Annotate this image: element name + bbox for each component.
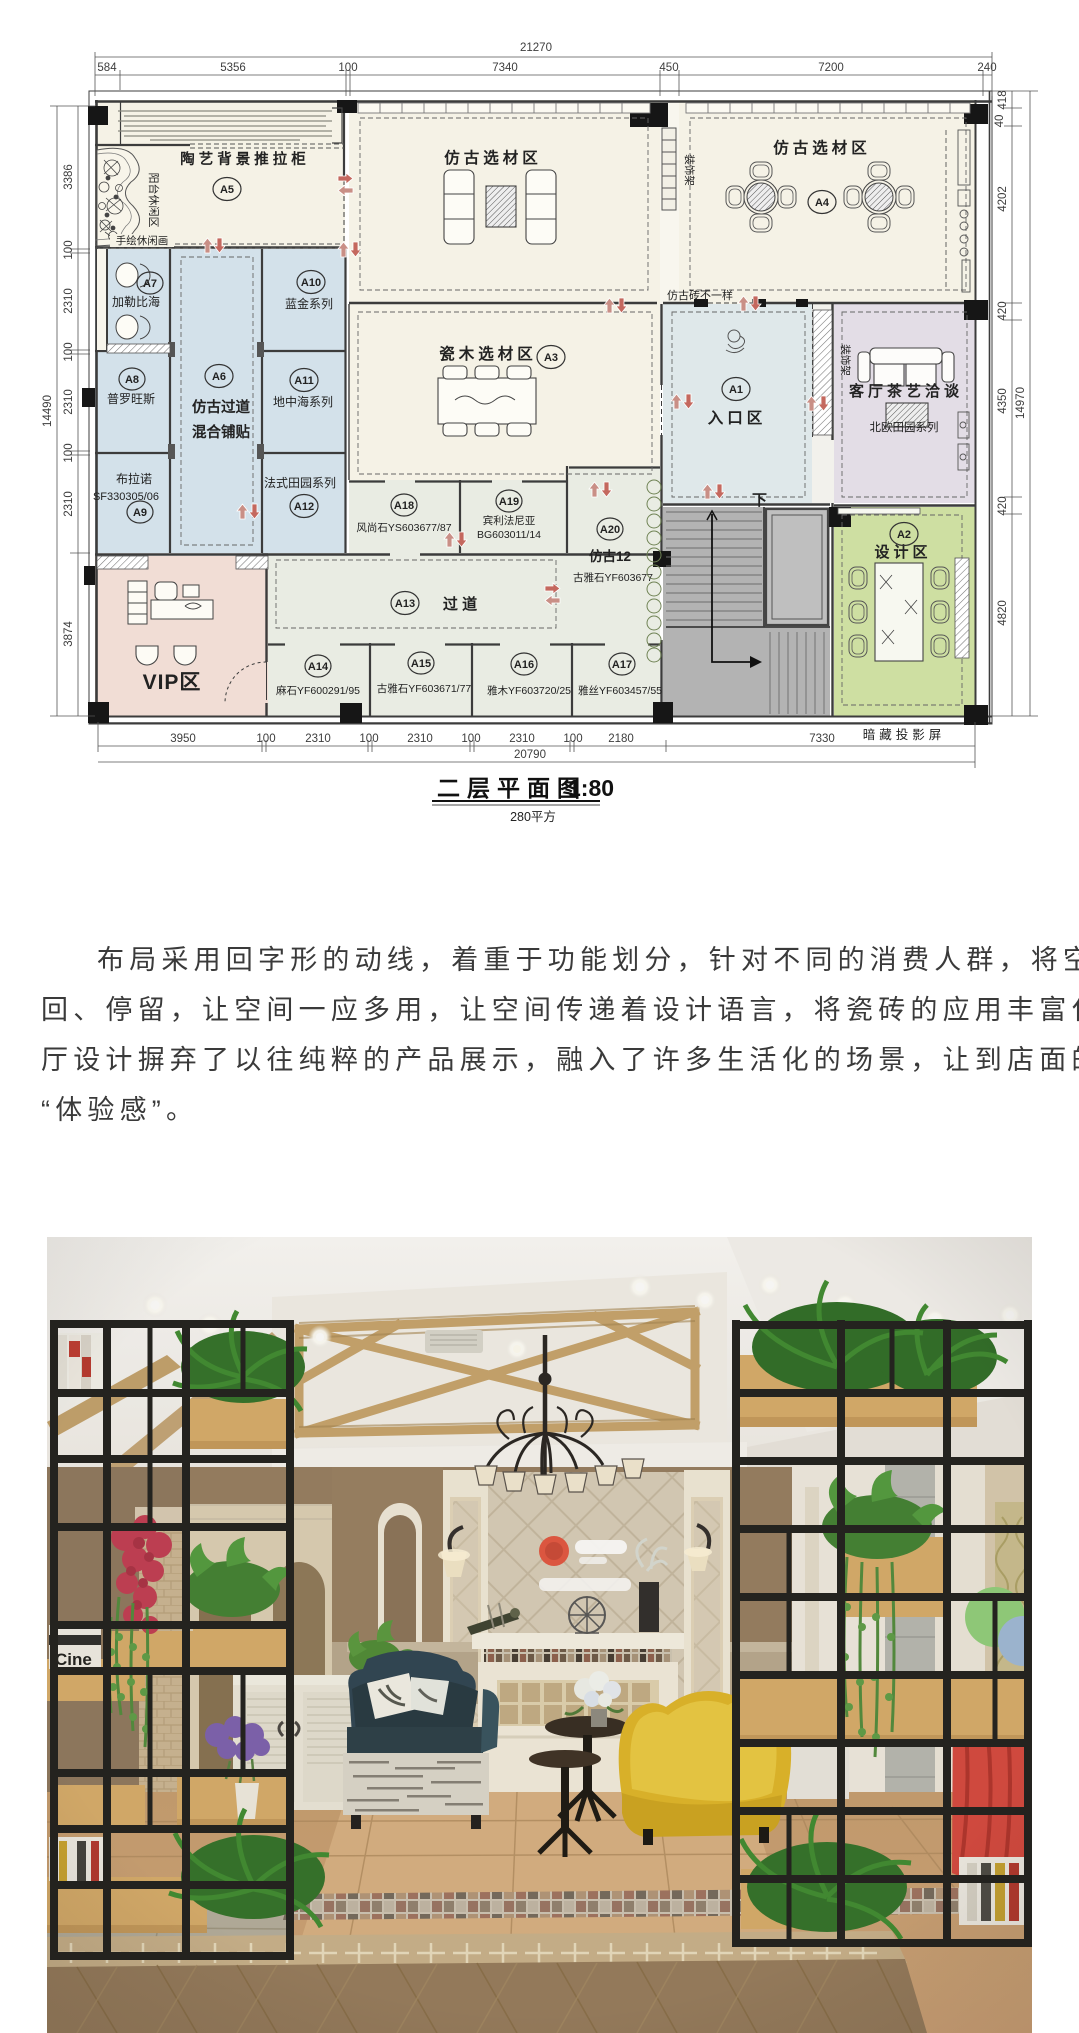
- svg-text:2310: 2310: [63, 491, 75, 517]
- svg-text:加勒比海: 加勒比海: [112, 294, 160, 309]
- svg-text:584: 584: [97, 62, 117, 74]
- svg-text:装饰架: 装饰架: [839, 344, 852, 376]
- svg-text:A8: A8: [125, 374, 139, 386]
- svg-text:仿古选材区: 仿古选材区: [444, 148, 542, 167]
- svg-text:A3: A3: [544, 352, 558, 364]
- svg-text:古雅石YF603677: 古雅石YF603677: [573, 571, 653, 584]
- svg-text:过 道: 过 道: [443, 595, 477, 613]
- svg-text:21270: 21270: [520, 42, 552, 54]
- svg-text:100: 100: [461, 733, 480, 745]
- svg-text:布拉诺: 布拉诺: [116, 471, 152, 486]
- svg-text:A12: A12: [294, 501, 314, 513]
- svg-text:40: 40: [994, 115, 1006, 128]
- svg-text:瓷木选材区: 瓷木选材区: [439, 344, 537, 363]
- svg-text:A17: A17: [612, 659, 632, 671]
- svg-text:4202: 4202: [997, 186, 1009, 212]
- svg-text:VIP区: VIP区: [143, 671, 202, 694]
- svg-text:BG603011/14: BG603011/14: [477, 529, 541, 541]
- svg-text:A2: A2: [897, 529, 911, 541]
- svg-text:雅丝YF603457/55: 雅丝YF603457/55: [578, 684, 662, 697]
- svg-text:法式田园系列: 法式田园系列: [264, 476, 336, 490]
- svg-text:SF330305/06: SF330305/06: [93, 491, 159, 503]
- svg-text:1:80: 1:80: [568, 775, 614, 801]
- svg-text:240: 240: [977, 62, 996, 74]
- svg-text:地中海系列: 地中海系列: [273, 394, 333, 409]
- svg-text:100: 100: [63, 342, 75, 361]
- svg-text:二层平面图: 二层平面图: [437, 775, 587, 801]
- svg-text:A16: A16: [514, 659, 534, 671]
- svg-text:蓝金系列: 蓝金系列: [285, 296, 333, 311]
- svg-text:仿古选材区: 仿古选材区: [773, 138, 871, 157]
- svg-text:280平方: 280平方: [510, 809, 556, 824]
- svg-text:手绘休闲画: 手绘休闲画: [116, 234, 169, 247]
- svg-text:陶艺背景推拉柜: 陶艺背景推拉柜: [180, 150, 310, 168]
- svg-text:入口区: 入口区: [708, 409, 767, 427]
- svg-text:7200: 7200: [818, 62, 844, 74]
- svg-text:3950: 3950: [170, 733, 196, 745]
- svg-text:100: 100: [563, 733, 582, 745]
- svg-text:100: 100: [256, 733, 275, 745]
- svg-text:100: 100: [338, 62, 357, 74]
- svg-text:雅木YF603720/25: 雅木YF603720/25: [487, 684, 571, 697]
- svg-text:暗藏投影屏: 暗藏投影屏: [863, 727, 946, 742]
- svg-text:A11: A11: [294, 375, 314, 387]
- svg-text:北欧田园系列: 北欧田园系列: [870, 420, 939, 434]
- svg-text:仿古过道: 仿古过道: [192, 398, 250, 416]
- svg-text:14970: 14970: [1015, 387, 1027, 419]
- svg-text:A5: A5: [220, 184, 234, 196]
- svg-text:A18: A18: [394, 500, 414, 512]
- svg-text:4350: 4350: [997, 388, 1009, 414]
- svg-text:20790: 20790: [514, 749, 546, 761]
- svg-text:A14: A14: [308, 661, 329, 673]
- svg-text:2310: 2310: [305, 733, 331, 745]
- svg-text:5356: 5356: [220, 62, 246, 74]
- svg-text:A13: A13: [395, 598, 415, 610]
- svg-text:A7: A7: [143, 278, 157, 290]
- svg-text:100: 100: [63, 240, 75, 259]
- svg-text:A4: A4: [815, 197, 830, 209]
- svg-text:2310: 2310: [407, 733, 433, 745]
- svg-text:仿古12: 仿古12: [589, 548, 631, 564]
- svg-text:3386: 3386: [63, 164, 75, 190]
- svg-text:7330: 7330: [809, 733, 835, 745]
- svg-text:A10: A10: [301, 277, 321, 289]
- svg-text:7340: 7340: [492, 62, 518, 74]
- svg-text:装饰架: 装饰架: [683, 154, 696, 186]
- svg-text:2310: 2310: [509, 733, 535, 745]
- svg-text:宾利法尼亚: 宾利法尼亚: [483, 514, 536, 527]
- svg-text:风尚石YS603677/87: 风尚石YS603677/87: [356, 521, 451, 534]
- svg-text:A15: A15: [411, 658, 431, 670]
- svg-text:A6: A6: [212, 371, 226, 383]
- svg-text:100: 100: [63, 443, 75, 462]
- svg-text:客厅茶艺洽谈: 客厅茶艺洽谈: [848, 382, 963, 400]
- svg-text:4820: 4820: [997, 600, 1009, 626]
- svg-text:仿古砖不一样: 仿古砖不一样: [667, 288, 733, 302]
- svg-text:麻石YF600291/95: 麻石YF600291/95: [276, 684, 360, 697]
- svg-text:2180: 2180: [608, 733, 634, 745]
- svg-text:A9: A9: [133, 507, 147, 519]
- svg-text:古雅石YF603671/77: 古雅石YF603671/77: [377, 682, 472, 695]
- svg-text:420: 420: [997, 496, 1009, 515]
- svg-text:100: 100: [359, 733, 378, 745]
- svg-text:A19: A19: [499, 496, 519, 508]
- svg-text:14490: 14490: [42, 395, 54, 427]
- svg-text:A1: A1: [729, 384, 743, 396]
- svg-text:普罗旺斯: 普罗旺斯: [107, 392, 155, 406]
- svg-text:混合铺贴: 混合铺贴: [192, 423, 250, 441]
- svg-text:450: 450: [659, 62, 678, 74]
- svg-text:418: 418: [997, 90, 1009, 109]
- svg-text:A20: A20: [600, 524, 620, 536]
- svg-text:2310: 2310: [63, 389, 75, 415]
- svg-text:3874: 3874: [63, 621, 75, 647]
- svg-text:下: 下: [752, 492, 767, 509]
- svg-text:阳台休闲区: 阳台休闲区: [147, 173, 161, 228]
- svg-text:420: 420: [997, 301, 1009, 320]
- svg-text:2310: 2310: [63, 288, 75, 314]
